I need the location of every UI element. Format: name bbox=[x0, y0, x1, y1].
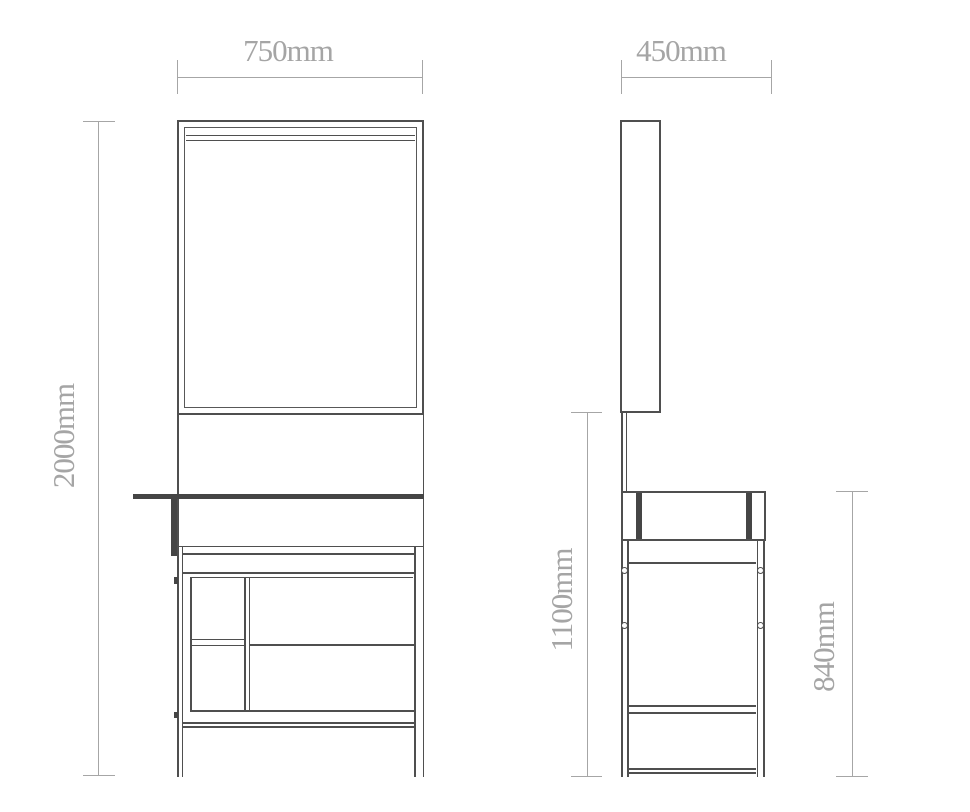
dimension-line bbox=[852, 491, 853, 776]
side-shelf-line bbox=[629, 712, 756, 714]
dimension-drawing-canvas: 750mm 2000mm bbox=[0, 0, 970, 812]
mirror-light-strip-line bbox=[186, 140, 415, 142]
dimension-tick bbox=[83, 121, 115, 122]
left-leg-inner-line bbox=[182, 547, 184, 777]
dimension-line bbox=[98, 121, 99, 775]
tabletop bbox=[133, 494, 424, 499]
table-box-side bbox=[621, 491, 766, 541]
dimension-tick bbox=[422, 60, 423, 94]
back-support-line bbox=[621, 413, 623, 491]
dimension-label-front-height: 2000mm bbox=[49, 351, 79, 521]
bolt-mark bbox=[174, 577, 179, 584]
dimension-label-table-height: 840mm bbox=[809, 572, 839, 722]
right-shelf-line bbox=[250, 644, 414, 646]
right-leg-inner-line bbox=[414, 547, 416, 777]
mirror-inner-frame bbox=[184, 127, 417, 408]
side-top-rail bbox=[629, 562, 756, 564]
bottom-shelf-line bbox=[190, 710, 414, 712]
shelf-frame-line bbox=[190, 577, 413, 579]
cabinet-right-edge bbox=[423, 415, 425, 777]
dimension-line bbox=[621, 77, 772, 78]
mirror-panel-side bbox=[620, 120, 661, 413]
dimension-line bbox=[177, 77, 423, 78]
bolt-circle bbox=[757, 622, 764, 629]
bottom-rail-line bbox=[183, 722, 414, 724]
dimension-label-front-width: 750mm bbox=[228, 36, 348, 66]
top-rail bbox=[183, 553, 414, 555]
dimension-tick bbox=[836, 491, 868, 492]
back-support-line bbox=[626, 413, 628, 491]
cabinet-left-edge bbox=[177, 415, 179, 777]
side-bottom-rail-line bbox=[629, 772, 756, 774]
bottom-rail-line bbox=[183, 726, 414, 728]
divider-line bbox=[244, 578, 246, 711]
dimension-tick bbox=[836, 776, 868, 777]
dimension-tick bbox=[571, 412, 602, 413]
shelf-frame-line bbox=[183, 572, 414, 574]
left-shelf-line bbox=[192, 645, 245, 647]
side-right-leg-line bbox=[763, 541, 765, 777]
table-box-post bbox=[636, 493, 642, 539]
bolt-circle bbox=[757, 567, 764, 574]
dimension-label-mirror-bottom-height: 1100mm bbox=[547, 515, 577, 685]
side-left-leg-line bbox=[627, 541, 629, 777]
mirror-light-strip-line bbox=[186, 135, 415, 137]
side-left-leg-line bbox=[621, 541, 623, 777]
bolt-circle bbox=[621, 567, 628, 574]
bolt-mark bbox=[174, 712, 179, 719]
side-shelf-line bbox=[629, 705, 756, 707]
dimension-tick bbox=[571, 776, 602, 777]
table-box-post bbox=[746, 493, 752, 539]
dimension-line bbox=[587, 413, 588, 776]
side-bottom-rail-line bbox=[629, 768, 756, 770]
left-shelf-line bbox=[192, 639, 245, 641]
dimension-tick bbox=[83, 775, 115, 776]
dimension-tick bbox=[621, 60, 622, 94]
side-right-leg-line bbox=[757, 541, 759, 777]
dimension-tick bbox=[177, 60, 178, 94]
support-bracket bbox=[171, 499, 177, 556]
dimension-label-side-depth: 450mm bbox=[621, 36, 741, 66]
drawer-panel-bottom bbox=[177, 546, 424, 548]
dimension-tick bbox=[771, 60, 772, 94]
bolt-circle bbox=[621, 622, 628, 629]
